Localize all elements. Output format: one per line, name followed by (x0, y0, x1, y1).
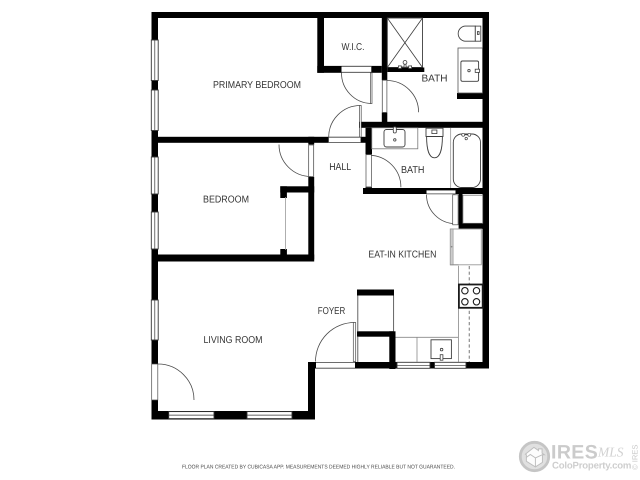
svg-text:BEDROOM: BEDROOM (203, 194, 249, 205)
svg-text:LIVING ROOM: LIVING ROOM (204, 335, 263, 346)
svg-text:MLS: MLS (597, 445, 624, 460)
svg-text:BATH: BATH (401, 165, 425, 176)
svg-text:HALL: HALL (329, 162, 351, 173)
svg-text:FLOOR PLAN CREATED BY CUBICASA: FLOOR PLAN CREATED BY CUBICASA APP. MEAS… (182, 465, 455, 471)
svg-text:W.I.C.: W.I.C. (342, 42, 365, 53)
svg-text:PRIMARY BEDROOM: PRIMARY BEDROOM (213, 80, 301, 91)
svg-text:© IRES: © IRES (631, 445, 640, 470)
svg-text:FOYER: FOYER (318, 306, 346, 317)
svg-text:EAT-IN KITCHEN: EAT-IN KITCHEN (368, 250, 436, 261)
svg-text:BATH: BATH (422, 73, 448, 84)
svg-text:ColoProperty.com: ColoProperty.com (552, 460, 631, 471)
